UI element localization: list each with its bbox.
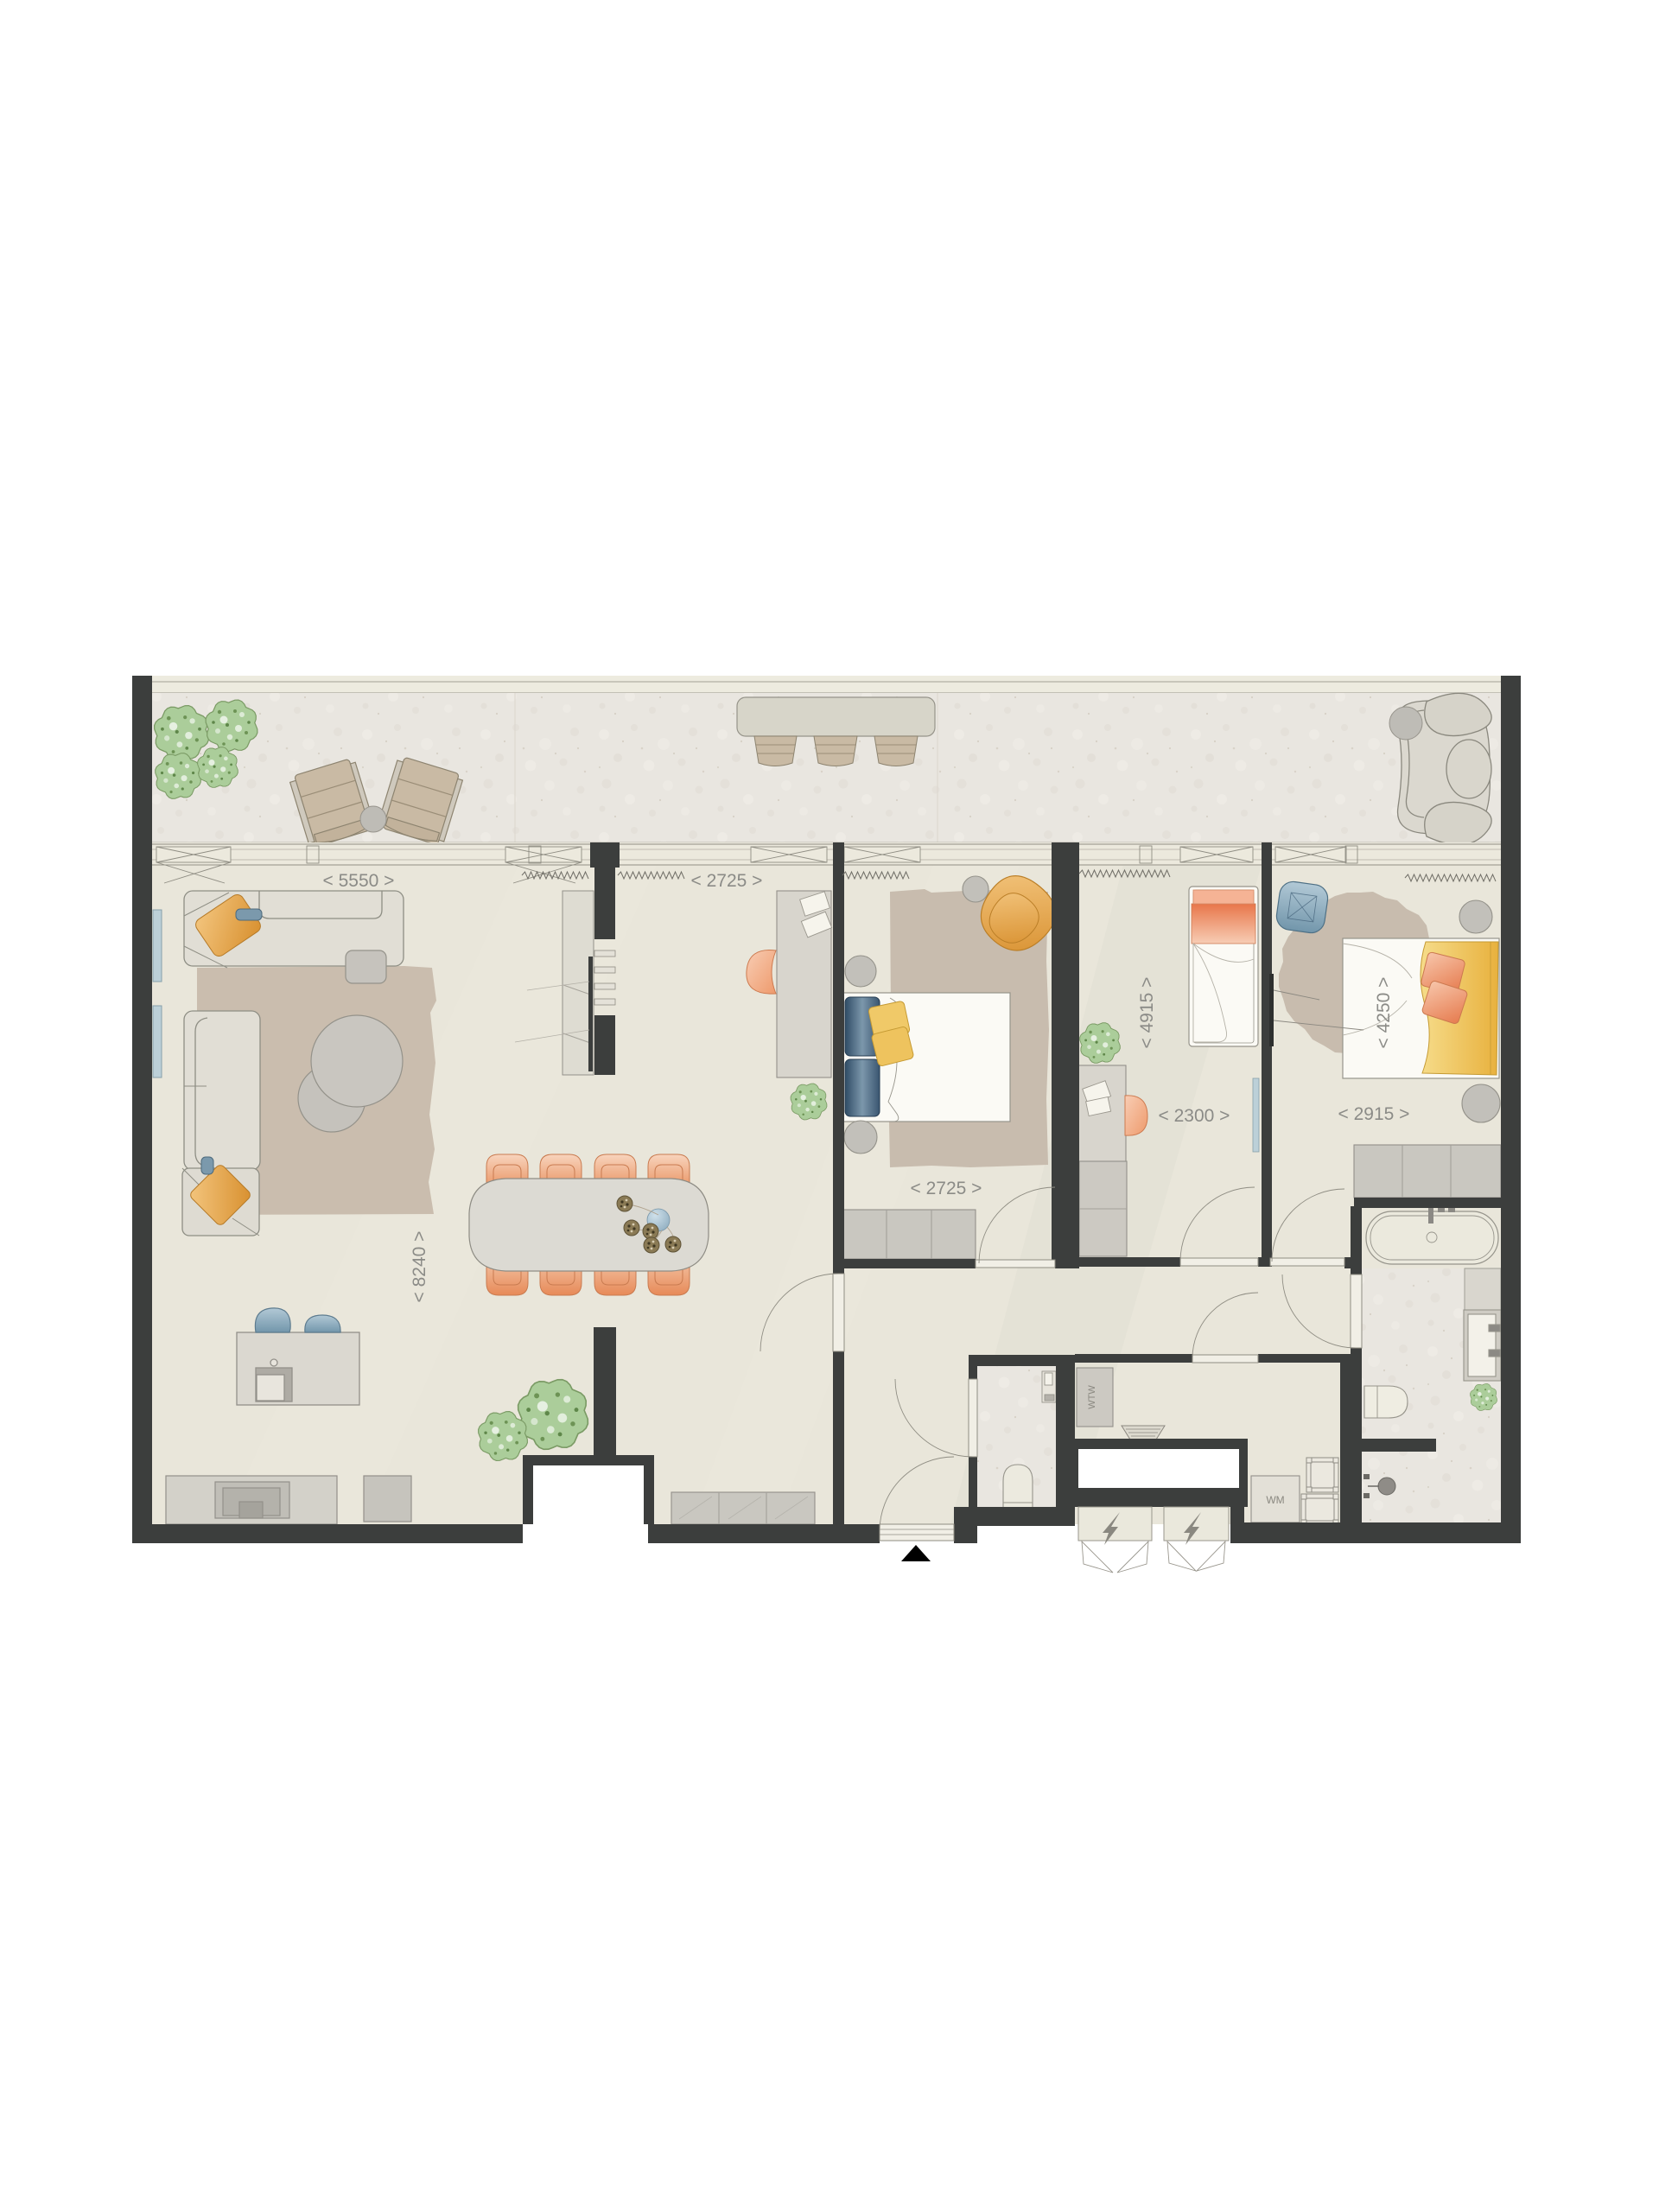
svg-text:< 4915 >: < 4915 > xyxy=(1137,977,1157,1049)
svg-text:< 4250 >: < 4250 > xyxy=(1374,977,1394,1049)
svg-text:< 2725 >: < 2725 > xyxy=(911,1179,982,1198)
svg-text:< 8240 >: < 8240 > xyxy=(410,1231,429,1303)
svg-text:< 5550 >: < 5550 > xyxy=(323,871,395,891)
svg-text:WM: WM xyxy=(1266,1494,1284,1506)
svg-text:WTW: WTW xyxy=(1087,1385,1097,1409)
svg-text:< 2725 >: < 2725 > xyxy=(691,871,763,891)
svg-text:< 2300 >: < 2300 > xyxy=(1159,1106,1230,1126)
svg-text:< 2915 >: < 2915 > xyxy=(1338,1104,1410,1124)
